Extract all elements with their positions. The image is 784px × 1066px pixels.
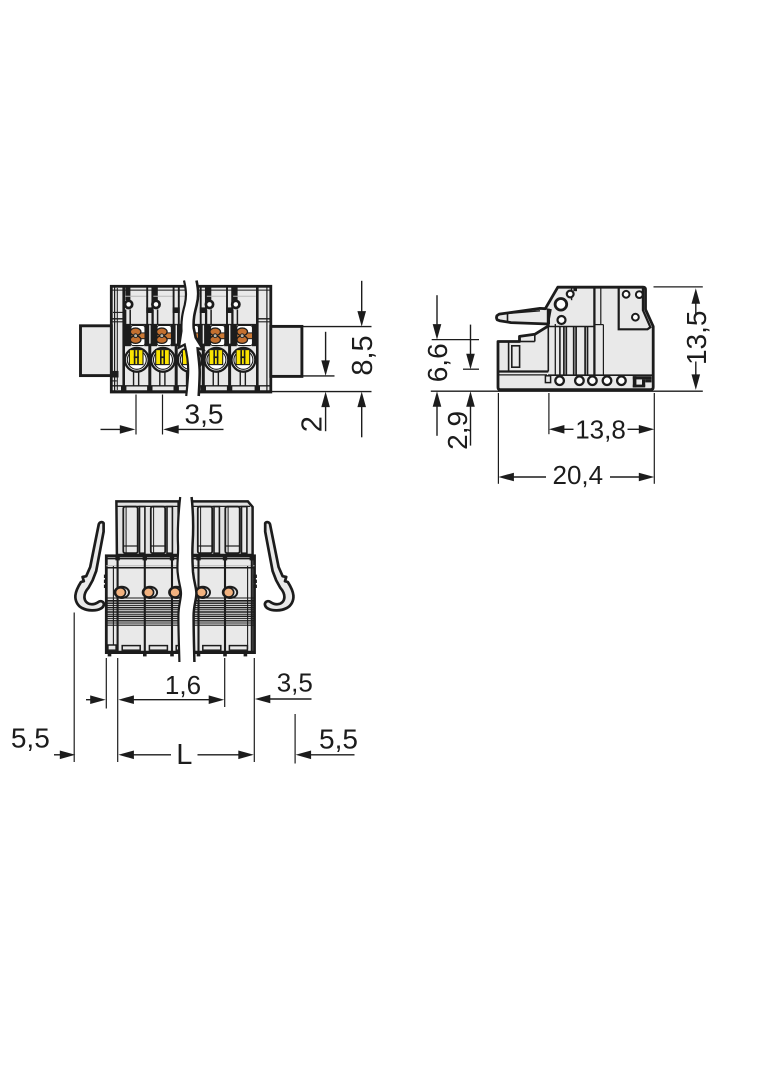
svg-text:13,5: 13,5 — [681, 311, 712, 366]
svg-text:5,5: 5,5 — [319, 724, 358, 755]
svg-text:13,8: 13,8 — [575, 414, 626, 444]
svg-text:L: L — [176, 739, 192, 771]
svg-text:5,5: 5,5 — [11, 723, 50, 754]
svg-text:1,6: 1,6 — [165, 670, 201, 700]
svg-text:20,4: 20,4 — [552, 460, 603, 490]
svg-text:8,5: 8,5 — [347, 335, 379, 375]
svg-text:2,9: 2,9 — [442, 411, 473, 450]
svg-text:6,6: 6,6 — [422, 343, 453, 382]
svg-text:3,5: 3,5 — [185, 398, 224, 429]
svg-text:3,5: 3,5 — [277, 668, 313, 698]
svg-text:2: 2 — [296, 416, 328, 432]
